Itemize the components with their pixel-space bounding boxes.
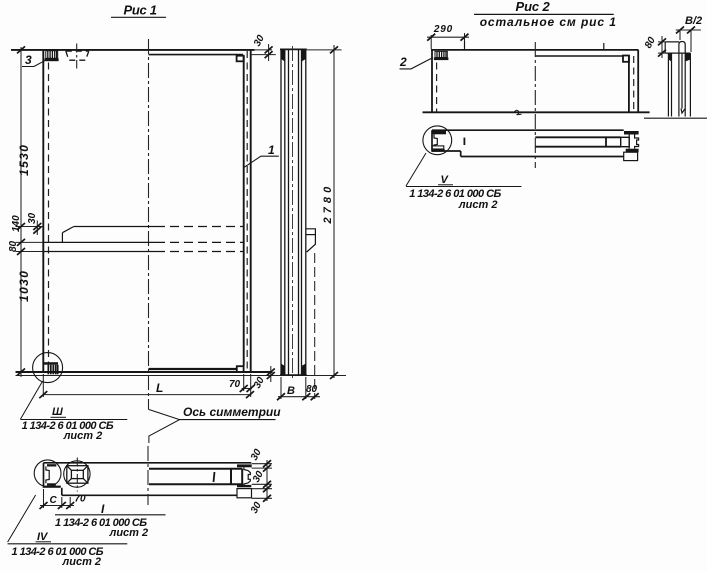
- svg-text:лист 2: лист 2: [109, 527, 149, 539]
- svg-text:В: В: [287, 385, 295, 397]
- svg-text:лист 2: лист 2: [63, 430, 103, 442]
- svg-text:140: 140: [11, 215, 22, 232]
- svg-text:290: 290: [433, 24, 453, 35]
- svg-text:Рис 2: Рис 2: [516, 0, 551, 14]
- svg-text:1530: 1530: [17, 144, 31, 176]
- svg-text:1030: 1030: [17, 270, 31, 302]
- svg-text:80: 80: [306, 384, 318, 395]
- svg-text:Ш: Ш: [52, 406, 63, 418]
- svg-text:30: 30: [27, 212, 38, 224]
- svg-text:лист 2: лист 2: [61, 556, 101, 568]
- svg-text:2780: 2780: [322, 183, 334, 225]
- svg-text:L: L: [156, 381, 163, 395]
- svg-text:70: 70: [75, 494, 87, 505]
- svg-text:Рис 1: Рис 1: [124, 3, 157, 18]
- svg-text:В/2: В/2: [685, 15, 702, 27]
- svg-text:лист 2: лист 2: [458, 199, 498, 211]
- svg-text:IV: IV: [37, 531, 49, 543]
- svg-text:3: 3: [25, 53, 32, 67]
- svg-text:2: 2: [399, 55, 407, 69]
- svg-text:80: 80: [8, 240, 19, 252]
- svg-text:Ось симметрии: Ось симметрии: [183, 405, 281, 419]
- svg-text:остальное см рис 1: остальное см рис 1: [480, 15, 617, 29]
- svg-text:70: 70: [229, 379, 241, 390]
- svg-text:С: С: [50, 495, 58, 506]
- svg-text:1: 1: [268, 143, 275, 157]
